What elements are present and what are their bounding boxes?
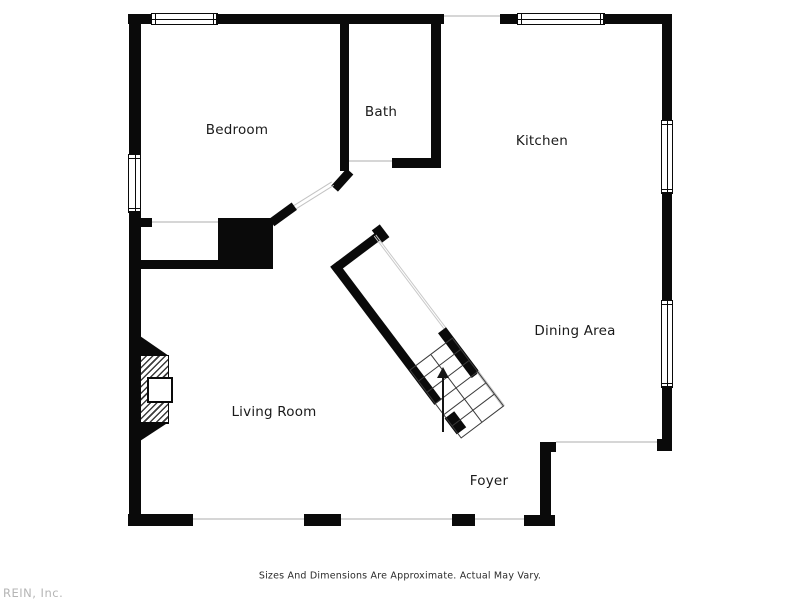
- wall-segment: [128, 514, 193, 526]
- window-top-bedroom: [151, 13, 218, 25]
- stairs-up-arrow: [442, 378, 444, 432]
- stair-treads: [409, 337, 504, 438]
- room-label-foyer: Foyer: [470, 473, 508, 489]
- wall-bedroom-bottom: [133, 260, 273, 269]
- wall-segment: [216, 14, 444, 24]
- wall-opening: [193, 518, 305, 520]
- wall-segment: [662, 14, 672, 122]
- room-label-living-room: Living Room: [231, 404, 316, 420]
- wall-bath-left: [340, 24, 349, 171]
- window-right-kitchen: [661, 120, 673, 194]
- room-label-kitchen: Kitchen: [516, 133, 568, 149]
- wall-segment: [452, 514, 475, 526]
- floor-plan: Bedroom Bath Kitchen Dining Area Living …: [0, 0, 800, 600]
- window-right-dining: [661, 300, 673, 388]
- stair-rail: [374, 235, 449, 333]
- wall-bath-bottom: [392, 158, 441, 168]
- wall-opening: [444, 15, 501, 17]
- window-top-kitchen: [517, 13, 605, 25]
- wall-bath-right: [431, 24, 441, 168]
- rein-watermark: REIN, Inc.: [3, 586, 63, 600]
- front-door-opening: [475, 518, 525, 520]
- room-label-bath: Bath: [365, 104, 397, 120]
- room-label-bedroom: Bedroom: [206, 122, 268, 138]
- wall-segment: [657, 439, 672, 451]
- firebox: [147, 377, 173, 403]
- fireplace-top-angle: [140, 336, 169, 356]
- wall-segment: [662, 192, 672, 302]
- window-left-bedroom: [128, 154, 141, 213]
- wall-segment: [304, 514, 341, 526]
- closet-opening: [152, 221, 218, 223]
- wall-opening: [341, 518, 453, 520]
- wall-foyer-partition: [540, 442, 551, 523]
- stairs-up-arrow-head: [437, 367, 449, 378]
- wall-closet-stub: [133, 218, 152, 227]
- fireplace-bottom-angle: [140, 422, 169, 441]
- wall-segment: [662, 386, 672, 440]
- dining-foyer-opening: [556, 441, 657, 443]
- room-label-dining-area: Dining Area: [534, 323, 615, 339]
- staircase: [330, 233, 504, 438]
- wall-bath-corner: [331, 168, 353, 191]
- wall-hall-diagonal: [269, 203, 297, 227]
- wall-segment: [129, 14, 141, 156]
- wall-segment: [540, 442, 556, 452]
- disclaimer-text: Sizes And Dimensions Are Approximate. Ac…: [259, 571, 541, 582]
- bath-door-opening: [349, 160, 392, 162]
